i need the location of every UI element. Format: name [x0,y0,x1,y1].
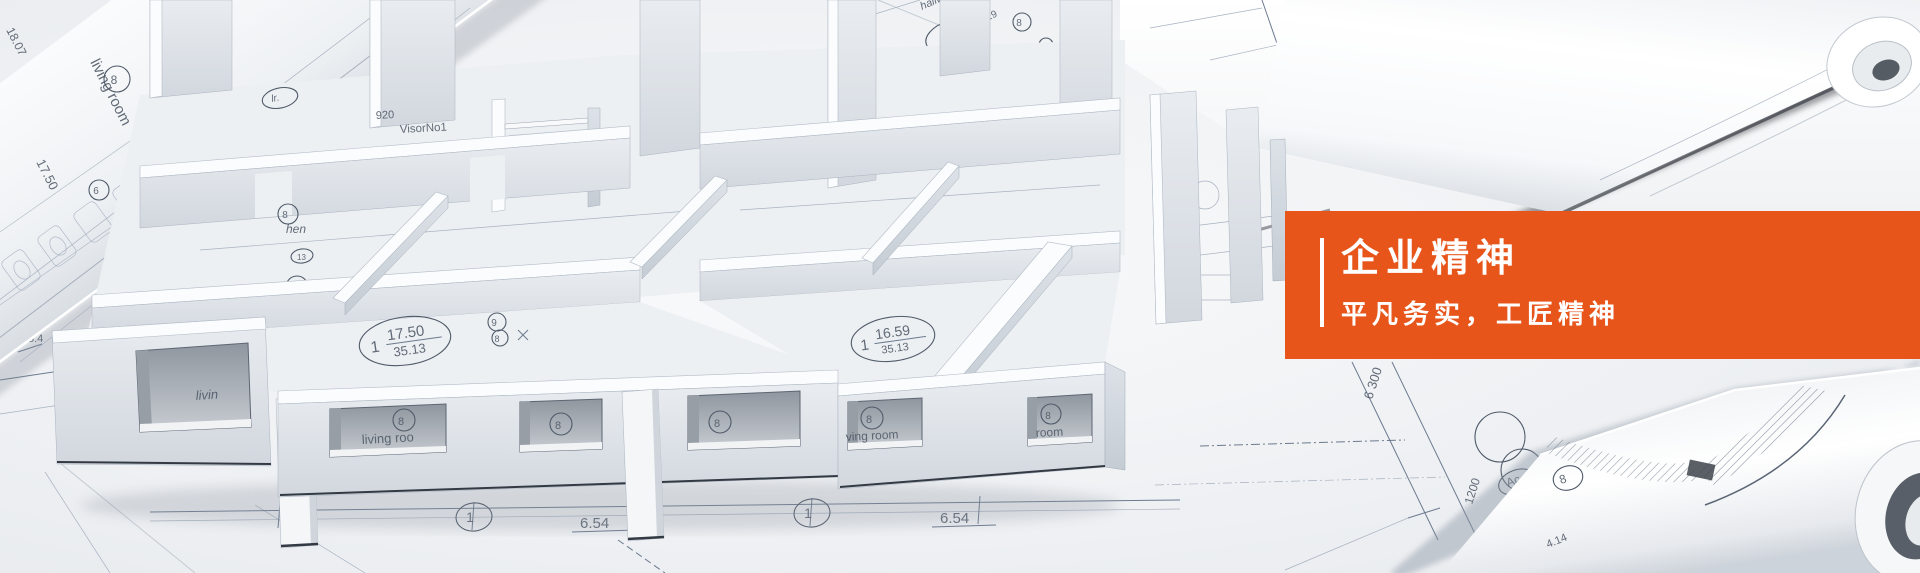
circle-13: 13 [297,253,306,262]
label-livin: livin [195,386,218,403]
circle-8-top2: 8 [1016,18,1022,29]
circle-8-w3: 8 [714,418,720,430]
circle-8-w4: 8 [866,414,872,426]
circle-9: 9 [491,318,497,329]
facade-centre: 8 living roo 8 8 [278,370,838,497]
label-hen: hen [286,222,306,236]
circle-8-kitchen: 8 [282,210,288,221]
circle-8-w1: 8 [398,416,404,428]
accent-bar [1320,238,1324,327]
circle-8-w2: 8 [555,420,561,432]
slogan-panel: 企业精神 平凡务实，工匠精神 [1285,211,1920,359]
circle-8-floor: 8 [494,334,499,344]
slogan-subtitle: 平凡务实，工匠精神 [1341,299,1620,329]
label-visor: VisorNo1 [400,122,448,136]
label-living-roo-w1: living roo [361,429,414,447]
facade-left-block: livin [52,317,271,466]
circle-8-w5: 8 [1045,411,1051,422]
label-920: 920 [376,109,395,122]
slogan-title: 企业精神 [1341,239,1521,279]
label-room-w5: room [1035,425,1063,440]
circle-6: 6 [93,186,99,197]
hero-banner: 8.4 1.25 1 1 6.54 6.54 hallway 8 1.29 12… [0,0,1920,573]
label-ving-room: ving room [845,427,898,444]
